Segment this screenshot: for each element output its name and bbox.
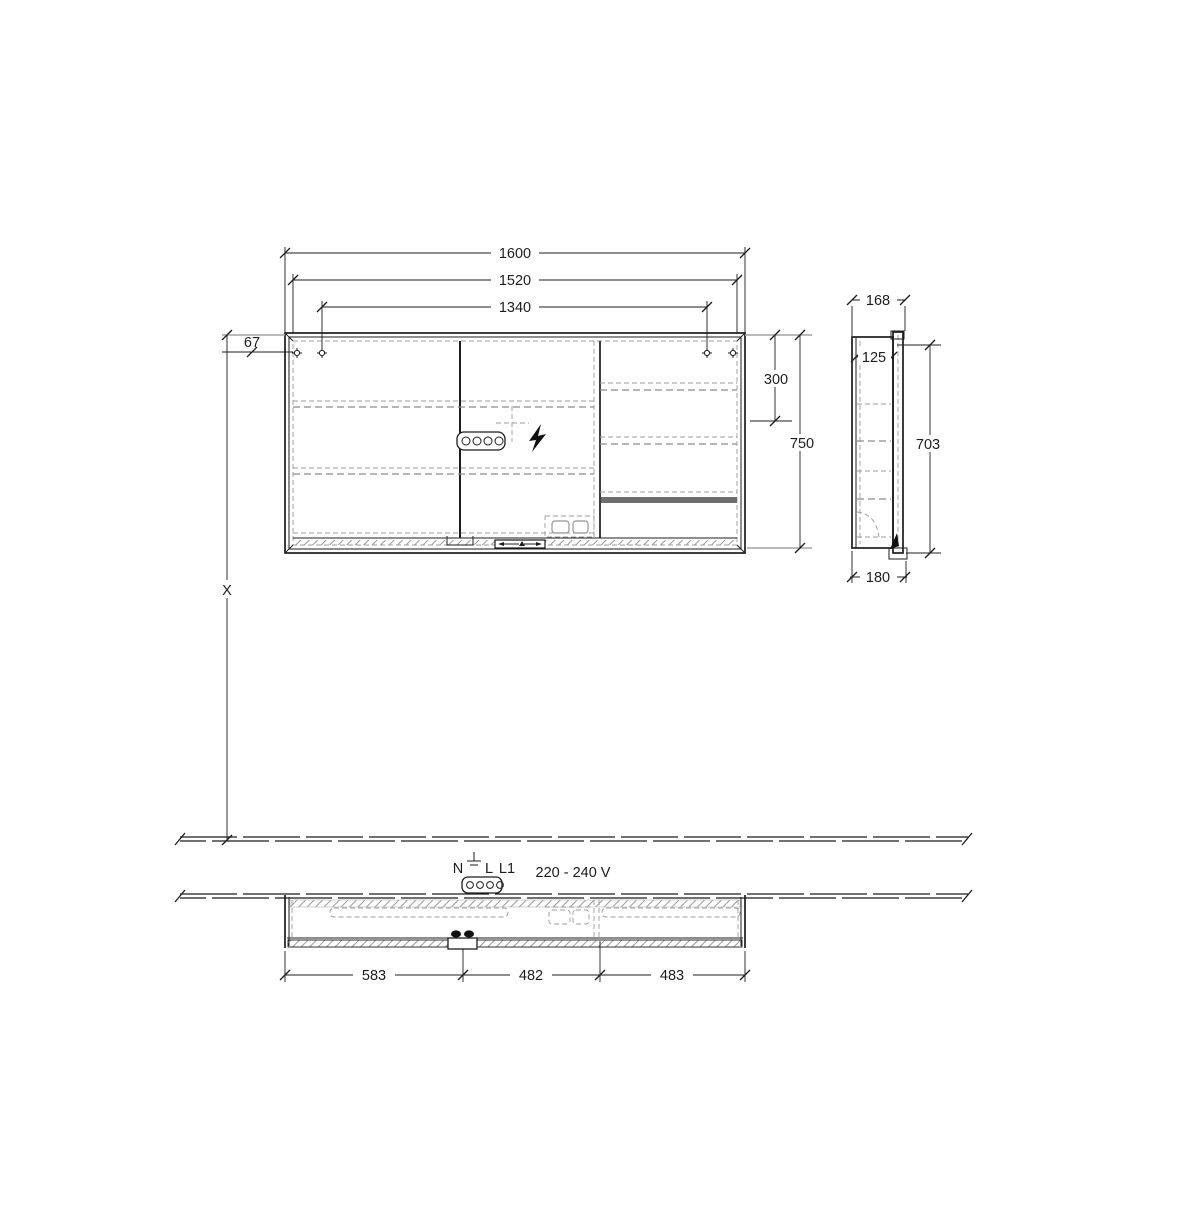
screw-icon (702, 348, 712, 358)
terminal-l1-label: L1 (499, 861, 515, 877)
screw-icon (728, 348, 738, 358)
dim-screw-offset: 67 (222, 330, 260, 357)
dim-label-703: 703 (916, 437, 940, 453)
side-body (852, 337, 893, 548)
dim-carcass-height: 703 (910, 340, 947, 558)
terminal-strip-icon (462, 877, 503, 893)
side-mirror-door (891, 331, 904, 553)
double-socket-icon (545, 516, 594, 537)
dim-label-x: X (222, 583, 232, 599)
sensor-switch-icon (495, 540, 545, 548)
screw-icon (317, 348, 327, 358)
plan-cabinet-outline (285, 895, 745, 948)
dim-label-125: 125 (862, 350, 886, 366)
dim-plan-right: 483 (651, 967, 693, 984)
terminal-n-label: N (453, 861, 463, 877)
dim-screw-spacing: 1340 (317, 299, 712, 316)
cabinet-frame (285, 333, 745, 553)
socket-strip-icon (457, 432, 505, 450)
technical-drawing-canvas: 1600 1520 1340 67 X (0, 0, 1200, 1200)
dim-shelf-height: 300 (758, 330, 793, 426)
plan-dimensions: 583 482 483 (280, 941, 750, 984)
front-view (285, 333, 745, 553)
mirror-cabinet-drawing: 1600 1520 1340 67 X (0, 0, 1200, 1200)
mounting-screw-icons (292, 348, 738, 358)
plan-view (285, 895, 745, 949)
dim-label-482: 482 (519, 968, 543, 984)
dim-label-750: 750 (790, 436, 814, 452)
dim-inner-width: 1520 (288, 272, 742, 289)
shelf-lines-left (293, 401, 594, 533)
voltage-label: 220 - 240 V (536, 865, 611, 881)
dim-label-483: 483 (660, 968, 684, 984)
dim-label-583: 583 (362, 968, 386, 984)
dim-label-168: 168 (866, 293, 890, 309)
dim-mounting-height: X (218, 335, 236, 845)
dim-body-depth: 125 (851, 349, 897, 366)
dim-label-300: 300 (764, 372, 788, 388)
dim-total-width: 1600 (280, 245, 750, 262)
terminal-l-label: L (485, 861, 493, 877)
plan-switch-icon (448, 930, 477, 949)
lightning-bolt-icon (529, 424, 546, 452)
dim-bottom-depth: 180 (847, 569, 910, 586)
dim-label-1340: 1340 (499, 300, 531, 316)
dim-label-1600: 1600 (499, 246, 531, 262)
plan-socket-icon (545, 907, 593, 924)
dim-label-1520: 1520 (499, 273, 531, 289)
dim-total-height: 750 (784, 330, 819, 553)
dim-total-depth: 168 (847, 292, 910, 309)
shelf-lines-right (600, 383, 737, 503)
dim-label-67: 67 (244, 335, 260, 351)
screw-icon (292, 348, 302, 358)
dim-plan-left: 583 (353, 967, 395, 984)
dim-label-180: 180 (866, 570, 890, 586)
wall-section-upper (175, 833, 972, 845)
dim-plan-center: 482 (510, 967, 552, 984)
electrical-connection: N L L1 220 - 240 V (453, 852, 611, 893)
ground-icon (467, 852, 481, 865)
